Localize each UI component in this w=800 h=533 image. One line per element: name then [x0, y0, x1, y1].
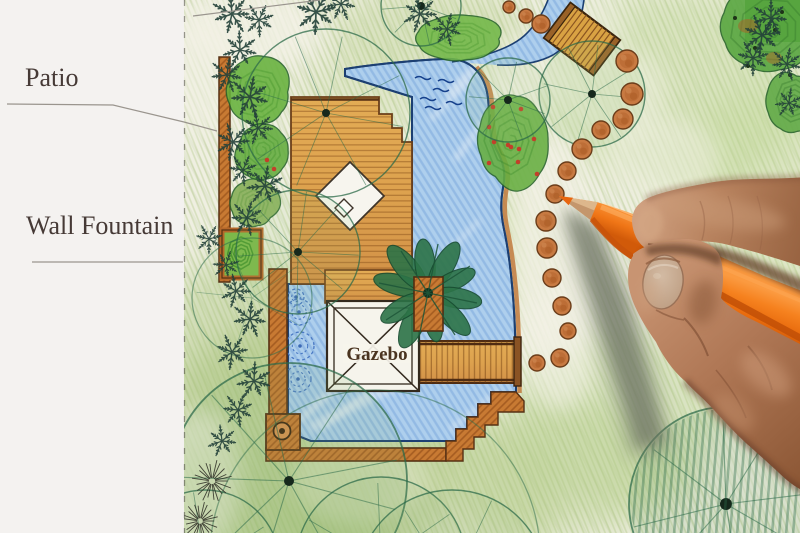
svg-text:Gazebo: Gazebo — [346, 344, 407, 365]
svg-text:Wall Fountain: Wall Fountain — [26, 211, 173, 240]
svg-text:Patio: Patio — [25, 63, 78, 92]
